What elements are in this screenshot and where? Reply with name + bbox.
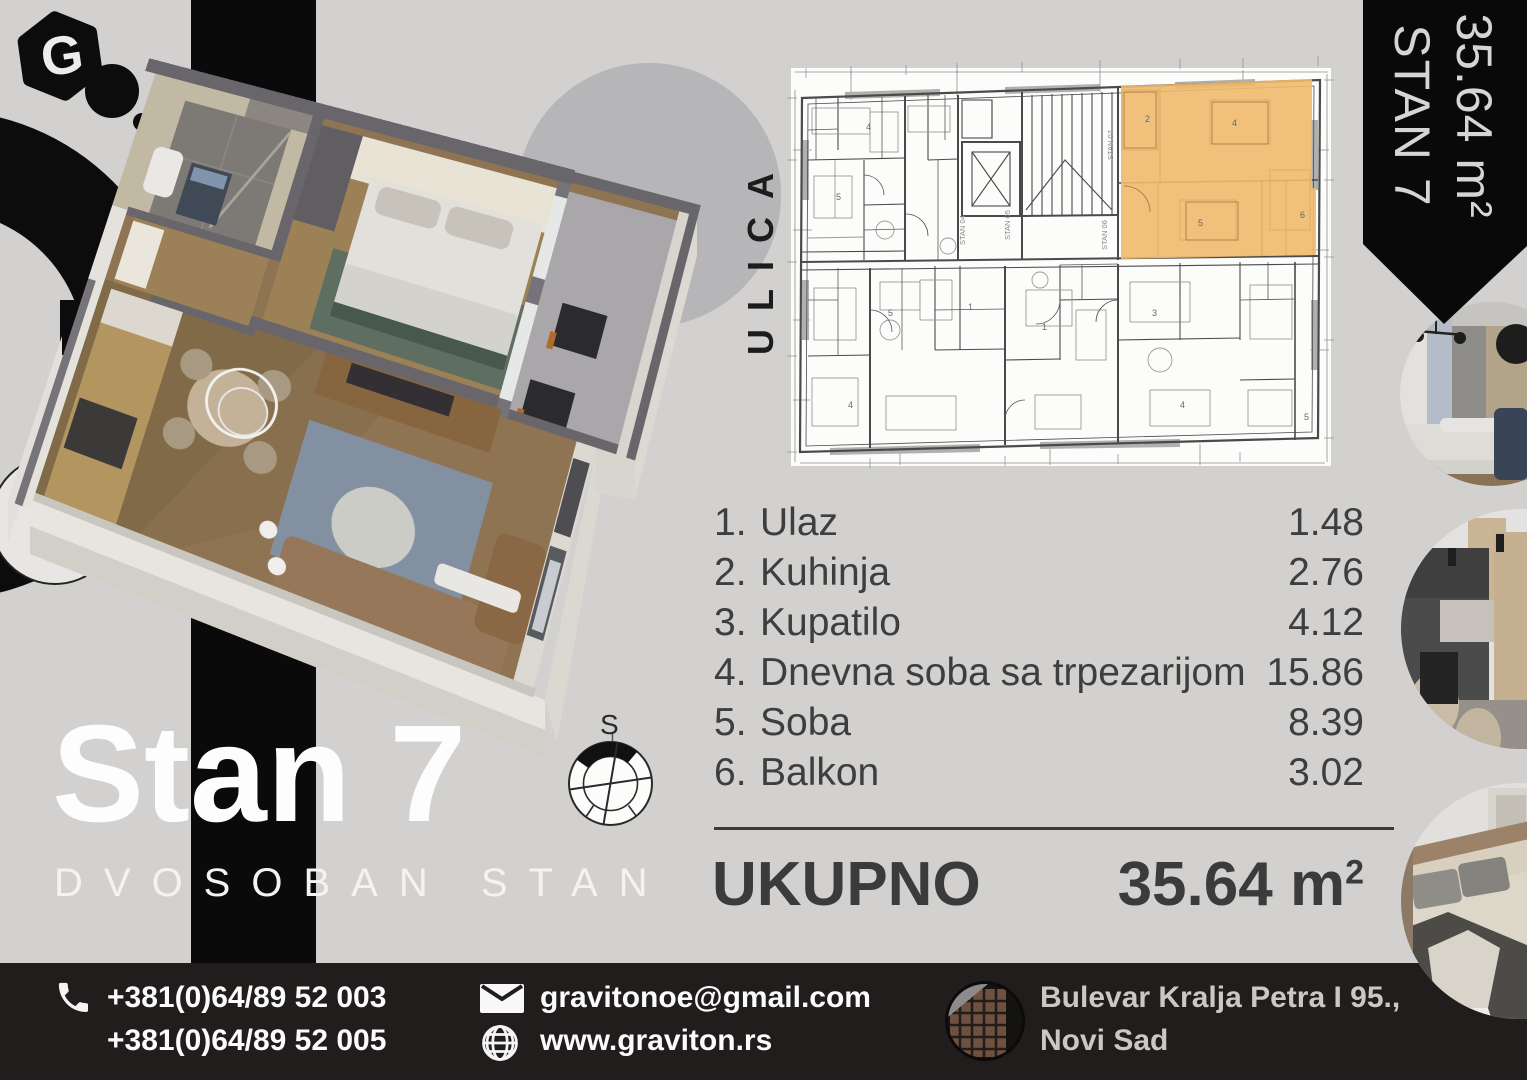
svg-text:STAN 7: STAN 7 [1384, 24, 1440, 207]
svg-text:35.64 m²: 35.64 m² [1446, 13, 1502, 218]
